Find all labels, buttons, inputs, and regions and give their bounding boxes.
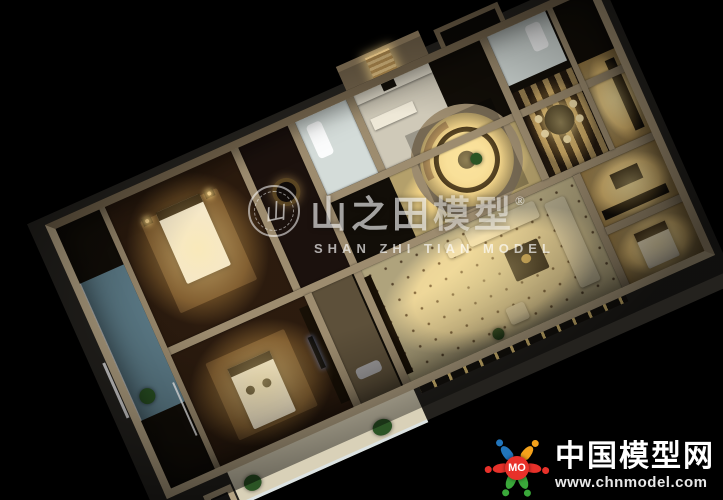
watermark-brand-cn: 山之田模型® <box>310 184 525 238</box>
watermark-brand-en: SHAN ZHI TIAN MODEL <box>314 241 555 256</box>
watermark: 山 山之田模型® SHAN ZHI TIAN MODEL <box>248 184 555 256</box>
terrace-plant <box>241 472 264 494</box>
photo-canvas: 山 山之田模型® SHAN ZHI TIAN MODEL MO 中国模型网 ww… <box>0 0 723 500</box>
brand-suffix-cn: 模型 <box>433 195 515 236</box>
brand-seal-icon: 山 <box>248 185 300 237</box>
site-logo-text: 中国模型网 www.chnmodel.com <box>555 441 715 491</box>
site-name: 中国模型网 <box>555 441 715 473</box>
watermark-row: 山 山之田模型® <box>248 184 555 238</box>
site-logo: MO 中国模型网 www.chnmodel.com <box>489 438 715 494</box>
mo-badge: MO <box>505 456 529 480</box>
people-circle-icon: MO <box>489 438 545 494</box>
site-url: www.chnmodel.com <box>555 474 715 491</box>
brand-name-cn: 山之田 <box>310 195 433 236</box>
registered-mark: ® <box>515 193 525 208</box>
seal-glyph: 山 <box>246 183 303 240</box>
